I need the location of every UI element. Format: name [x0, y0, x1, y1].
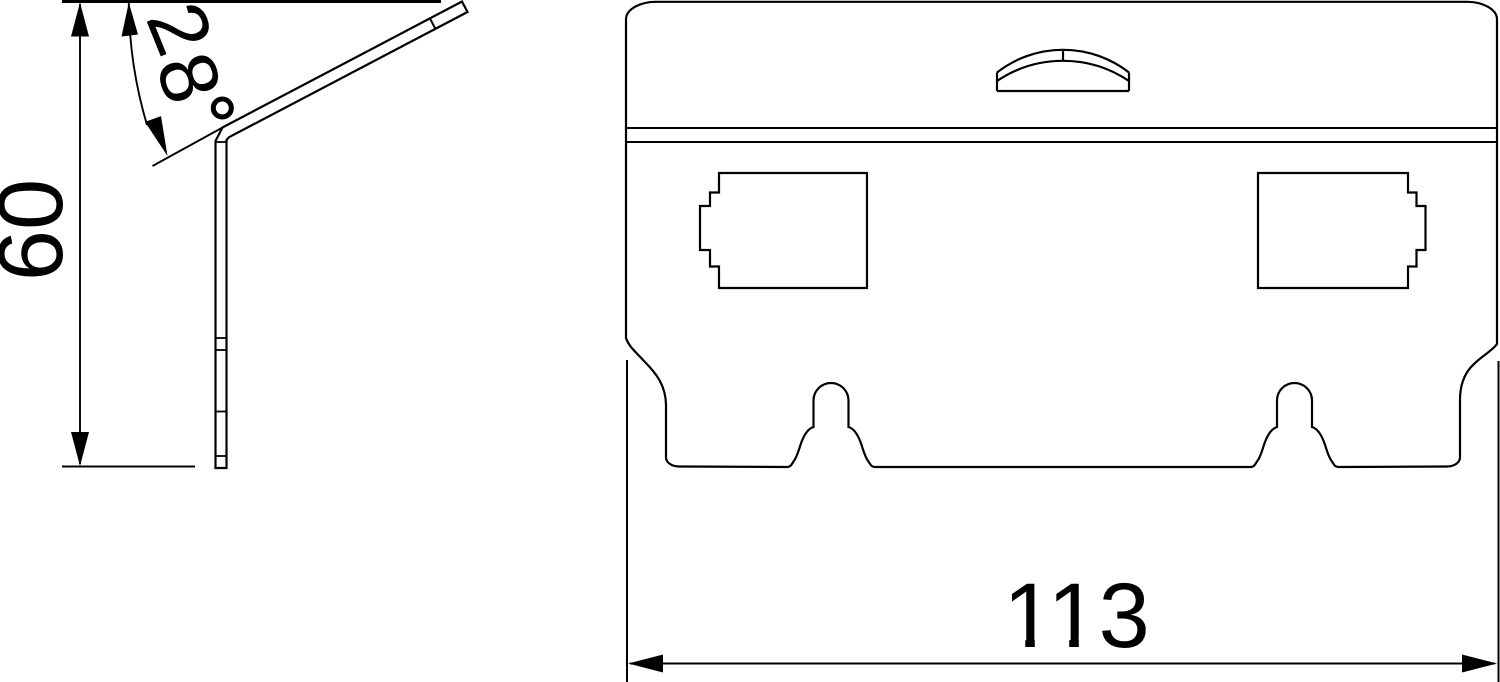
- svg-text:113: 113: [1003, 565, 1150, 667]
- svg-text:60: 60: [0, 179, 82, 281]
